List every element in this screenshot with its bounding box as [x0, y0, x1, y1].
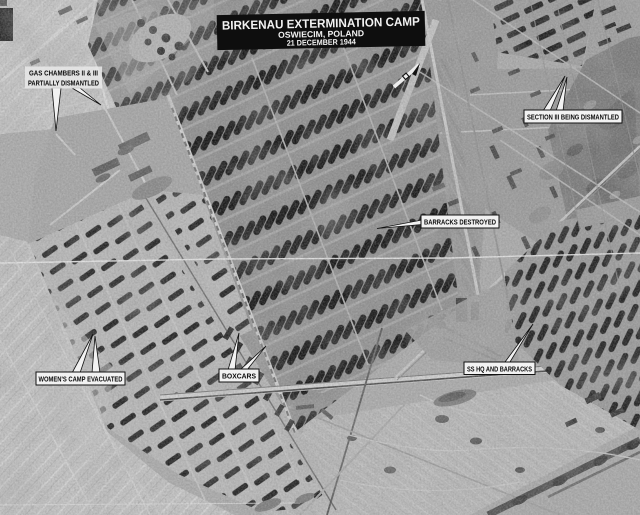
- svg-text:WOMEN'S CAMP EVACUATED: WOMEN'S CAMP EVACUATED: [39, 375, 123, 384]
- svg-text:GAS CHAMBERS II & III: GAS CHAMBERS II & III: [29, 69, 98, 78]
- svg-text:BOXCARS: BOXCARS: [222, 372, 256, 381]
- svg-text:SS HQ AND BARRACKS: SS HQ AND BARRACKS: [467, 365, 532, 374]
- svg-text:PARTIALLY DISMANTLED: PARTIALLY DISMANTLED: [28, 79, 99, 88]
- svg-text:SECTION III BEING DISMANTLED: SECTION III BEING DISMANTLED: [527, 113, 619, 122]
- svg-text:21 DECEMBER 1944: 21 DECEMBER 1944: [287, 37, 357, 47]
- svg-text:BARRACKS DESTROYED: BARRACKS DESTROYED: [424, 218, 496, 227]
